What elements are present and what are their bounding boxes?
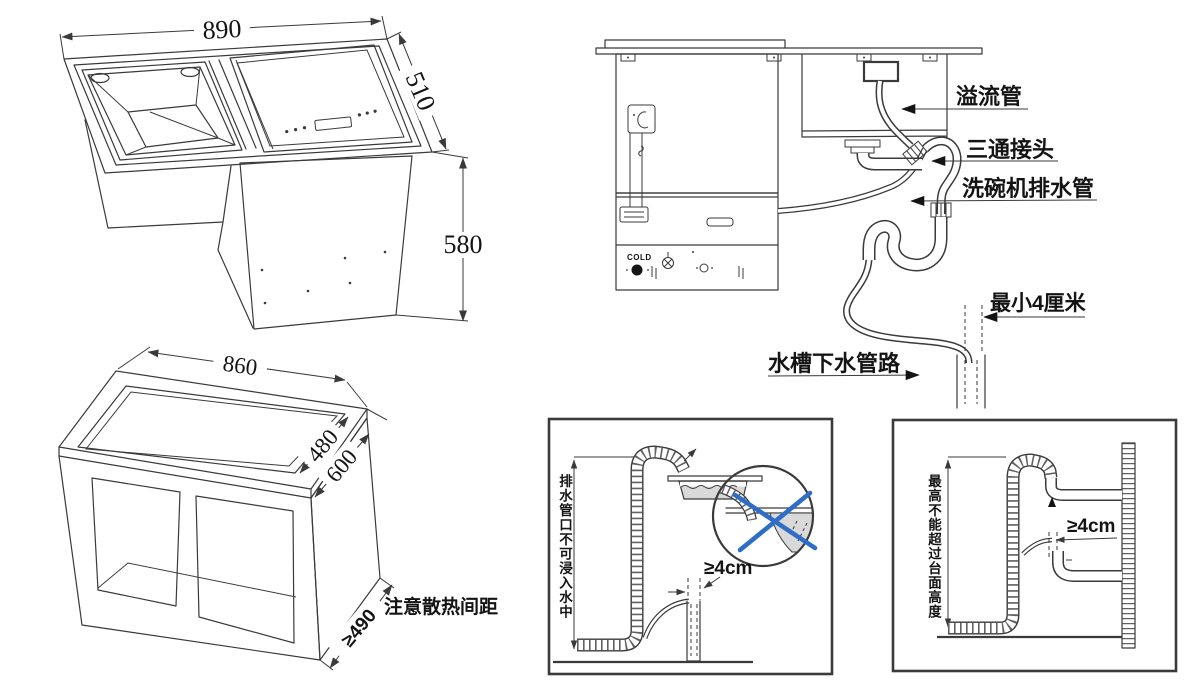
overflow-pipe-label: 溢流管 [956, 84, 1022, 109]
dim-890-label: 890 [202, 14, 242, 45]
dim-width: 890 [60, 14, 387, 59]
sink-drain-label: 水槽下水管路 [768, 351, 901, 376]
cold-label: COLD [627, 253, 652, 262]
lower-wall-pipe [1058, 551, 1122, 576]
countertop [596, 40, 982, 61]
gap-dimension: ≥4cm [668, 558, 752, 600]
wrong-installation-inset [712, 466, 820, 566]
dim-depth: 510 [387, 32, 449, 152]
height-limit-vertical-note: 最高不能超过台面高度 [925, 474, 941, 634]
drain-port-warning-box: ≥4cm [545, 415, 840, 680]
sink-side-view [802, 55, 947, 153]
cabinet-isometric-drawing: 860 480 600 ≥490 [45, 345, 515, 695]
mounting-clips [621, 54, 937, 61]
cabinet-frame [59, 371, 380, 660]
gap-dimension: ≥4cm [1023, 516, 1117, 560]
dishwasher-drain-label: 洗碗机排水管 [962, 176, 1094, 201]
drain-port-vertical-note: 排水管口不可浸入水中 [556, 474, 572, 634]
dim-860-label: 860 [221, 351, 259, 381]
wall [1122, 443, 1135, 648]
unit-isometric-drawing: 890 510 580 [40, 10, 480, 340]
corrugated-drain-hose [577, 449, 696, 645]
height-measure [574, 457, 640, 649]
dim-580-label: 580 [444, 230, 483, 259]
dishwasher-side-view: COLD [616, 54, 778, 290]
sink-body [85, 120, 231, 228]
dishwasher-body [218, 156, 412, 329]
installation-diagram-sheet: 890 510 580 [0, 0, 1200, 700]
tee-joint-label: 三通接头 [966, 137, 1054, 162]
upper-wall-pipe [1048, 478, 1122, 507]
water-inlet-panel: COLD [626, 251, 743, 279]
standpipe [645, 601, 700, 661]
dishwasher-control-panel [284, 109, 378, 133]
heat-clearance-note: 注意散热间距 [384, 595, 498, 618]
dim-height: 580 [396, 152, 483, 321]
gap-4cm-label: ≥4cm [1067, 516, 1115, 537]
flow-arrow [684, 449, 696, 461]
height-measure [948, 457, 1006, 627]
plumbing-diagram: COLD [570, 5, 1195, 413]
overflow-box [864, 62, 898, 81]
min-4cm-label: 最小4厘米 [990, 292, 1087, 315]
plumbing-labels: 溢流管 三通接头 洗碗机排水管 水槽下水管路 最小4厘米 [768, 84, 1097, 376]
dim-clearance: ≥490 [320, 578, 394, 670]
unit-top-face [64, 39, 432, 173]
basin [668, 476, 762, 499]
gap-4cm-label: ≥4cm [704, 558, 752, 579]
